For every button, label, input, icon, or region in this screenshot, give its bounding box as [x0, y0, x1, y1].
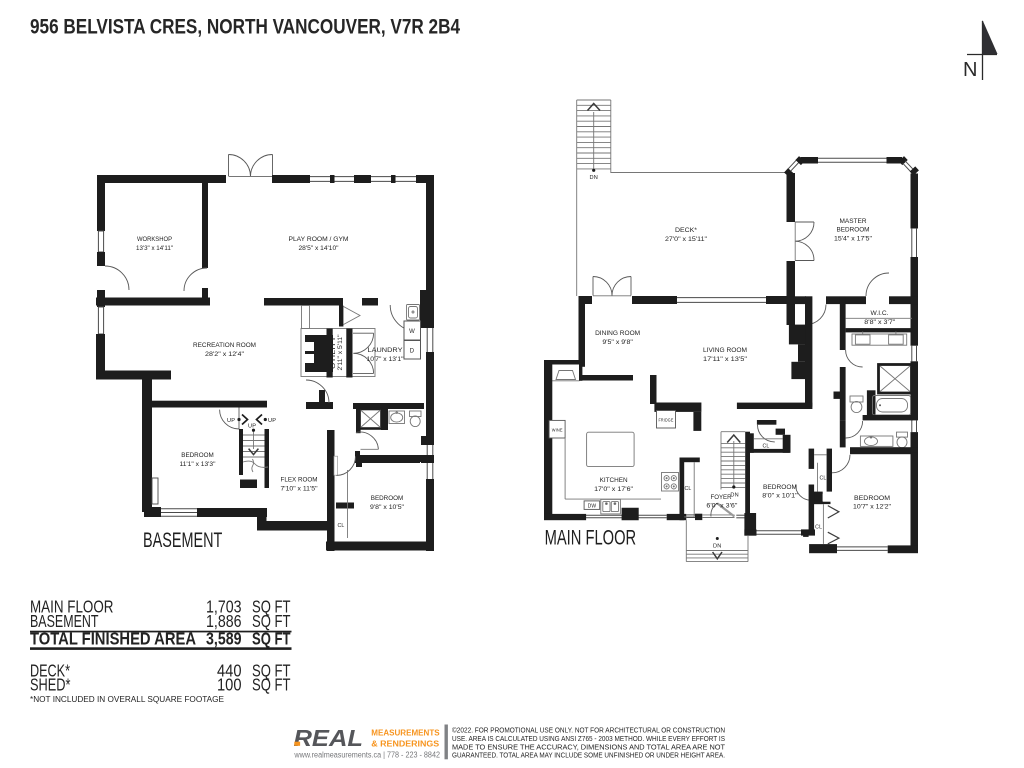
svg-text:WINE: WINE: [552, 428, 563, 433]
svg-text:27'0" x 15'11": 27'0" x 15'11": [665, 236, 707, 243]
svg-text:15'4" x 17'5": 15'4" x 17'5": [834, 236, 872, 243]
svg-text:BEDROOM: BEDROOM: [371, 495, 404, 502]
svg-text:www.realmeasurements.ca | 778: www.realmeasurements.ca | 778 - 223 - 88…: [293, 750, 440, 759]
svg-text:DN: DN: [589, 175, 597, 181]
svg-text:D: D: [410, 349, 415, 355]
svg-text:CL: CL: [337, 523, 344, 529]
svg-text:DECK*: DECK*: [675, 227, 697, 234]
svg-text:11'1" x 13'3": 11'1" x 13'3": [180, 461, 216, 468]
svg-text:DW: DW: [588, 504, 597, 510]
svg-text:LAUNDRY: LAUNDRY: [368, 347, 404, 354]
svg-text:CL: CL: [762, 443, 769, 449]
svg-text:13'3" x 14'11": 13'3" x 14'11": [136, 245, 173, 252]
svg-text:DN: DN: [713, 544, 721, 550]
svg-text:UP: UP: [248, 424, 256, 430]
svg-text:10'7" x 12'2": 10'7" x 12'2": [853, 504, 891, 511]
svg-text:28'2" x 12'4": 28'2" x 12'4": [205, 351, 244, 358]
svg-text:956 BELVISTA CRES, NORTH VANCO: 956 BELVISTA CRES, NORTH VANCOUVER, V7R …: [30, 16, 460, 39]
svg-text:WORKSHOP: WORKSHOP: [137, 236, 172, 243]
svg-text:SQ FT: SQ FT: [252, 629, 291, 649]
svg-text:8'8" x 3'7": 8'8" x 3'7": [864, 319, 895, 326]
svg-text:BEDROOM: BEDROOM: [181, 452, 214, 459]
svg-text:& RENDERINGS: & RENDERINGS: [371, 738, 439, 748]
svg-text:17'11" x 13'5": 17'11" x 13'5": [703, 356, 747, 363]
svg-text:10'7" x 13'1": 10'7" x 13'1": [367, 356, 404, 363]
svg-text:TOTAL FINISHED AREA: TOTAL FINISHED AREA: [30, 629, 196, 649]
svg-text:BEDROOM: BEDROOM: [763, 484, 797, 491]
svg-text:FLEX ROOM: FLEX ROOM: [281, 477, 318, 484]
svg-text:2'11" x 5'11": 2'11" x 5'11": [337, 335, 344, 371]
svg-text:BASEMENT: BASEMENT: [143, 529, 222, 552]
svg-text:6'0" x 3'6": 6'0" x 3'6": [706, 503, 737, 510]
svg-text:DINING ROOM: DINING ROOM: [595, 330, 640, 337]
svg-text:W.I.C.: W.I.C.: [871, 310, 889, 317]
svg-text:9'5" x 9'8": 9'5" x 9'8": [602, 339, 633, 346]
svg-text:FRIDGE: FRIDGE: [659, 418, 674, 423]
svg-text:UTILITY: UTILITY: [330, 335, 337, 369]
svg-text:9'8" x 10'5": 9'8" x 10'5": [370, 504, 404, 511]
svg-text:SQ FT: SQ FT: [252, 675, 291, 695]
svg-text:DN: DN: [730, 493, 738, 499]
svg-text:RECREATION ROOM: RECREATION ROOM: [193, 342, 256, 349]
svg-text:PLAY ROOM / GYM: PLAY ROOM / GYM: [289, 236, 349, 243]
svg-text:*NOT INCLUDED IN OVERALL SQUAR: *NOT INCLUDED IN OVERALL SQUARE FOOTAGE: [30, 695, 224, 704]
svg-text:MASTER: MASTER: [840, 218, 867, 225]
svg-text:BEDROOM: BEDROOM: [854, 495, 890, 502]
svg-text:17'0" x 17'6": 17'0" x 17'6": [594, 486, 633, 493]
svg-text:CL: CL: [819, 476, 826, 482]
svg-text:KITCHEN: KITCHEN: [600, 477, 628, 484]
svg-text:8'0" x 10'1": 8'0" x 10'1": [762, 493, 798, 500]
svg-text:MAIN FLOOR: MAIN FLOOR: [545, 527, 637, 550]
svg-text:CL: CL: [815, 524, 822, 530]
svg-text:7'10" x 11'5": 7'10" x 11'5": [281, 486, 318, 493]
svg-text:3,589: 3,589: [206, 629, 242, 649]
svg-text:SHED*: SHED*: [30, 675, 71, 695]
svg-text:100: 100: [217, 675, 242, 695]
svg-text:N: N: [963, 59, 977, 81]
svg-text:GUARANTEED. TOTAL AREA MAY INC: GUARANTEED. TOTAL AREA MAY INCLUDE SOME …: [452, 751, 725, 760]
svg-text:CL: CL: [684, 486, 691, 492]
svg-text:UP: UP: [227, 418, 235, 424]
svg-text:LIVING ROOM: LIVING ROOM: [703, 347, 747, 354]
svg-text:UP: UP: [268, 418, 276, 424]
svg-text:REAL: REAL: [294, 725, 364, 751]
svg-text:W: W: [409, 329, 415, 335]
svg-text:28'5" x 14'10": 28'5" x 14'10": [299, 245, 339, 252]
svg-text:MEASUREMENTS: MEASUREMENTS: [371, 727, 440, 737]
svg-text:BEDROOM: BEDROOM: [837, 227, 870, 234]
svg-text:FOYER: FOYER: [711, 494, 732, 501]
